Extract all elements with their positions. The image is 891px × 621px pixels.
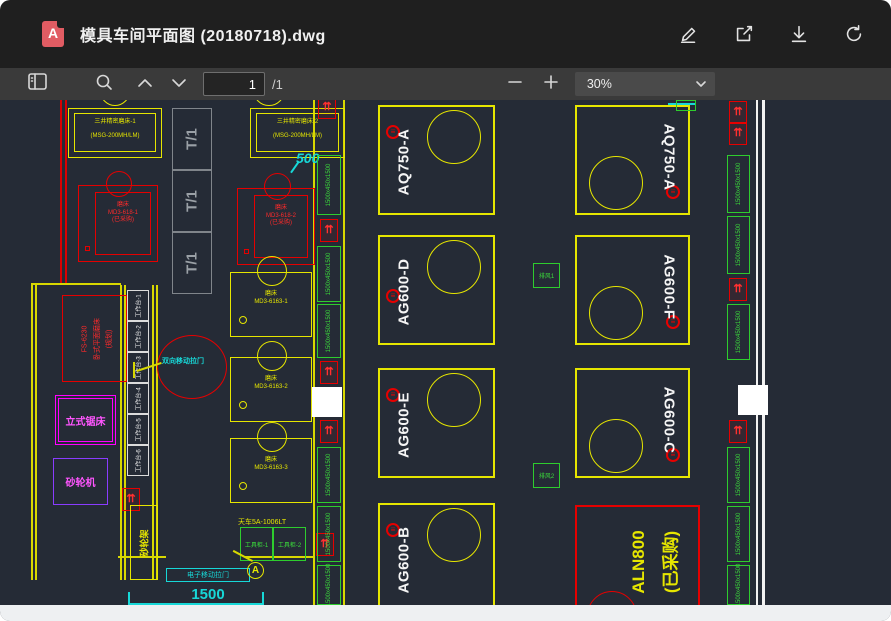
wheel-rack-label: 砂轮架	[138, 529, 151, 556]
wall-line	[65, 100, 67, 285]
dimension-1500: 1500	[178, 586, 238, 603]
bench-cell: 1500x450x1500	[727, 216, 750, 274]
workbench-label: 工作台-6	[134, 449, 143, 472]
bench-dim-label: 1500x450x1500	[326, 454, 332, 497]
dimension-500: 500	[296, 150, 319, 166]
t1-column: T/1 T/1 T/1	[172, 108, 212, 294]
refresh-icon[interactable]	[843, 23, 865, 45]
machine-ag600-c: ≡ AG600-C	[575, 368, 690, 478]
machine-name: 磨床	[231, 457, 311, 465]
bench-dim-label: 1500x450x1500	[326, 513, 332, 556]
bench-cell: 1500x450x1500	[317, 246, 341, 302]
machine-red-grinder-2: 磨床 MD3-618-2 (已采购)	[237, 188, 315, 265]
page-total-label: /1	[272, 77, 283, 92]
vent-label: 排风2	[539, 471, 554, 480]
machine-aq750-a-right: ≡ AQ750-A	[575, 105, 690, 215]
bench-dim-label: 1500x450x1500	[736, 454, 742, 497]
marker-a-letter: A	[252, 565, 259, 576]
machine-status: (已采购)	[252, 220, 310, 228]
zoom-level-value: 30%	[587, 77, 612, 91]
machine-label: AQ750-A	[396, 129, 413, 196]
bench-cell: 1500x450x1500	[727, 506, 750, 562]
machine-mitsui-grinder-1: 三井精密磨床-1 (MSG-200MH/LM)	[68, 108, 162, 158]
zoom-level-dropdown[interactable]: 30%	[575, 72, 715, 96]
chevron-down-icon	[695, 80, 707, 88]
vent-box-2: 排风2	[533, 463, 560, 488]
crane-label: 天车5A-1006LT	[238, 517, 286, 527]
outlet-symbol-icon: ⇈	[320, 420, 338, 443]
door-callout-text: 双向移动拉门	[162, 356, 204, 366]
electric-door-label: 电子移动拉门	[166, 568, 250, 582]
outlet-symbol-icon: ⇈	[729, 122, 747, 145]
bench-dim-label: 1500x450x1500	[326, 253, 332, 296]
bench-cell: 1500x450x1500	[727, 565, 750, 605]
workbench-label: 工作台-5	[134, 418, 143, 441]
machine-model: MD3-618-2	[252, 213, 310, 221]
machine-name: 磨床	[252, 205, 310, 213]
electric-door-text: 电子移动拉门	[187, 570, 229, 580]
machine-bench-grinder: 砂轮机	[53, 458, 108, 505]
bench-dim-label: 1500x450x1500	[326, 310, 332, 353]
door-block	[738, 385, 768, 415]
machine-label: ALN800	[629, 530, 649, 593]
machine-yellow-grinder-1: 磨床 MD3-6163-1	[230, 272, 312, 337]
machine-ag600-d: ≡ AG600-D	[378, 235, 495, 345]
bench-cell: 1500x450x1500	[317, 304, 341, 358]
door-block	[312, 387, 342, 417]
machine-aq750-a-left: ≡ AQ750-A	[378, 105, 495, 215]
zoom-out-icon[interactable]	[507, 74, 523, 95]
bench-dim-label: 1500x450x1500	[326, 564, 332, 607]
outlet-symbol-icon: ⇈	[729, 278, 747, 301]
workbench-strip: 工作台-1 工作台-2 工作台-3 工作台-4 工作台-5 工作台-6	[127, 290, 149, 476]
machine-model: MD3-618-1	[93, 210, 153, 218]
document-title: 模具车间平面图 (20180718).dwg	[80, 22, 326, 46]
wall-line	[31, 283, 33, 580]
t1-label: T/1	[184, 128, 201, 150]
wall-line	[756, 100, 758, 605]
workbench-label: 工作台-4	[134, 387, 143, 410]
machine-name: 磨床	[231, 291, 311, 299]
outlet-symbol-icon: ⇈	[729, 420, 747, 443]
machine-model: FS-6230	[82, 325, 89, 352]
machine-model: MD3-6163-2	[231, 384, 311, 392]
machine-name: 三井精密磨床-2	[251, 119, 344, 127]
outlet-symbol-icon: ⇈	[729, 101, 747, 124]
machine-circle	[100, 100, 130, 106]
bench-cell: 1500x450x1500	[317, 565, 341, 605]
machine-status: (已采购)	[93, 217, 153, 225]
t1-label: T/1	[184, 252, 201, 274]
machine-model: MD3-6163-3	[231, 465, 311, 473]
viewer-toolbar: /1 30%	[0, 68, 891, 100]
search-icon[interactable]	[95, 73, 113, 96]
dwg-file-icon-letter: A	[42, 25, 64, 41]
machine-label: AG600-B	[396, 527, 413, 594]
outlet-symbol-icon: ⇈	[320, 361, 338, 384]
wall-line	[343, 100, 345, 605]
machine-vertical-saw: 立式锯床	[58, 398, 113, 442]
machine-status: (规划)	[104, 329, 114, 348]
page-number-input[interactable]	[203, 72, 265, 96]
machine-name: 砂轮机	[66, 474, 96, 489]
machine-model: MD3-6163-1	[231, 299, 311, 307]
machine-name: 卧式平面磨床	[92, 318, 102, 360]
machine-ag600-e: ≡ AG600-E	[378, 368, 495, 478]
t1-label: T/1	[184, 190, 201, 212]
page-up-icon[interactable]	[137, 75, 153, 93]
dim-line	[128, 592, 130, 605]
vent-box-top	[676, 100, 696, 111]
workbench-label: 工作台-2	[134, 325, 143, 348]
leader-line	[133, 362, 135, 378]
wall-line	[762, 100, 765, 605]
machine-label: AG600-D	[396, 259, 413, 326]
workbench-label: 工作台-1	[134, 294, 143, 317]
bench-dim-label: 1500x450x1500	[326, 164, 332, 207]
drawing-canvas[interactable]: 三井精密磨床-1 (MSG-200MH/LM) 三井精密磨床-2 (MSG-20…	[0, 100, 891, 621]
page-down-icon[interactable]	[171, 75, 187, 93]
outlet-symbol-icon: ⇈	[320, 219, 338, 242]
page-edge	[0, 605, 891, 621]
bench-cell: 1500x450x1500	[727, 304, 750, 360]
machine-yellow-grinder-3: 磨床 MD3-6163-3	[230, 438, 312, 503]
bench-cell: 1500x450x1500	[317, 506, 341, 562]
bench-dim-label: 1500x450x1500	[736, 311, 742, 354]
machine-label: AG600-C	[661, 387, 678, 454]
marker-a: A	[247, 562, 264, 579]
tool-cabinet-label: 工具柜-1	[245, 540, 268, 549]
vent-label: 排风1	[539, 271, 554, 280]
machine-name: 三井精密磨床-1	[69, 119, 161, 127]
bench-dim-label: 1500x450x1500	[736, 224, 742, 267]
title-bar: A 模具车间平面图 (20180718).dwg	[0, 0, 891, 68]
machine-label: AG600-F	[661, 254, 678, 319]
tool-cabinet-2: 工具柜-2	[273, 527, 306, 561]
app-window: A 模具车间平面图 (20180718).dwg	[0, 0, 891, 621]
outlet-symbol-icon: ⇈	[318, 100, 336, 119]
bench-cell: 1500x450x1500	[317, 447, 341, 503]
wall-line	[60, 100, 62, 285]
machine-yellow-grinder-2: 磨床 MD3-6163-2	[230, 357, 312, 422]
sidebar-toggle-icon[interactable]	[28, 73, 47, 95]
bench-cell: 1500x450x1500	[727, 155, 750, 213]
machine-planned-grinder: FS-6230 卧式平面磨床 (规划)	[62, 295, 127, 382]
machine-model: (MSG-200MH/LM)	[69, 133, 161, 141]
bench-dim-label: 1500x450x1500	[736, 513, 742, 556]
machine-name: 磨床	[231, 376, 311, 384]
wall-line	[313, 100, 315, 605]
download-icon[interactable]	[788, 23, 810, 45]
machine-ag600-b: ≡ AG600-B	[378, 503, 495, 613]
wall-line	[31, 283, 121, 285]
zoom-in-icon[interactable]	[543, 74, 559, 95]
machine-label: AQ750-A	[661, 124, 678, 191]
dim-line	[262, 592, 264, 605]
tool-cabinet-label: 工具柜-2	[278, 540, 301, 549]
machine-aln800: ALN800 (已采购)	[575, 505, 700, 621]
machine-ag600-f: ≡ AG600-F	[575, 235, 690, 345]
machine-red-grinder-1: 磨床 MD3-618-1 (已采购)	[78, 185, 158, 262]
wheel-rack: 砂轮架	[130, 505, 158, 580]
vent-box-1: 排风1	[533, 263, 560, 288]
dim-tick	[290, 161, 300, 174]
machine-name: 磨床	[93, 202, 153, 210]
edit-icon[interactable]	[678, 23, 700, 45]
export-icon[interactable]	[733, 23, 755, 45]
machine-status: (已采购)	[657, 531, 682, 593]
machine-label: AG600-E	[396, 392, 413, 458]
bench-dim-label: 1500x450x1500	[736, 163, 742, 206]
bench-dim-label: 1500x450x1500	[736, 564, 742, 607]
bench-cell: 1500x450x1500	[317, 155, 341, 215]
dwg-file-icon: A	[42, 21, 64, 47]
machine-model: (MSG-200MH/LM)	[251, 133, 344, 141]
door-callout-ellipse	[157, 335, 227, 399]
machine-circle	[253, 100, 285, 106]
machine-name: 立式锯床	[66, 413, 106, 428]
wall-line	[35, 283, 37, 580]
bench-cell: 1500x450x1500	[727, 447, 750, 503]
